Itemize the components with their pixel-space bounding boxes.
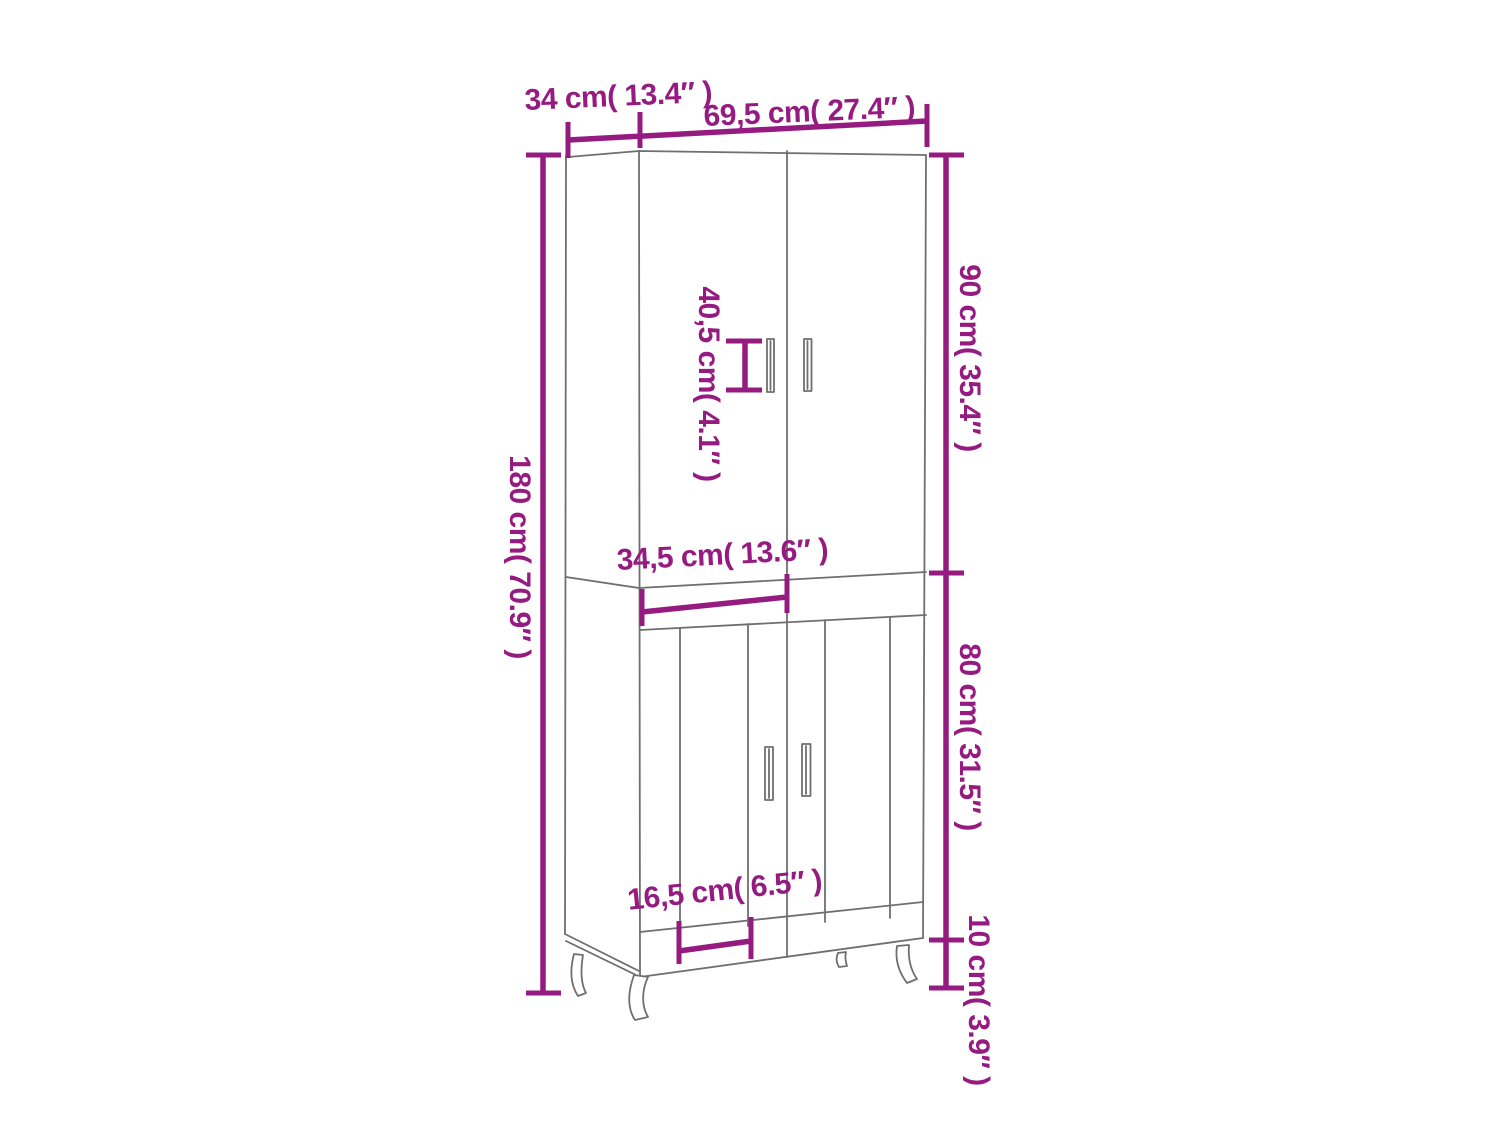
cabinet-left-edge (565, 155, 566, 934)
cabinet-right-edge (923, 155, 926, 938)
leg-front-right (896, 945, 917, 983)
leg-front-left (629, 975, 648, 1020)
door-handles (765, 339, 812, 800)
label-upper-height: 90 cm( 35.4″ ) (954, 264, 984, 451)
label-leg-height: 10 cm( 3.9″ ) (963, 914, 993, 1085)
label-lower-height: 80 cm( 31.5″ ) (954, 643, 984, 830)
middle-width-bar (642, 597, 787, 612)
upper-section-bottom-front (639, 572, 926, 588)
cabinet-legs (571, 945, 917, 1020)
cabinet-top-edge (568, 151, 926, 157)
dimension-diagram: 34 cm( 13.4″ ) 69,5 cm( 27.4″ ) 180 cm( … (0, 0, 1500, 1125)
base-bottom-edge (640, 938, 923, 977)
label-total-height: 180 cm( 70.9″ ) (504, 455, 534, 659)
label-handle-spacing: 40,5 cm( 4.1″ ) (693, 286, 723, 481)
leg-back-right (837, 952, 847, 967)
leg-back-left (571, 954, 586, 996)
bottom-width-bar (679, 941, 751, 951)
lower-section-top-edge (640, 615, 926, 630)
upper-section-bottom-side (566, 577, 639, 588)
